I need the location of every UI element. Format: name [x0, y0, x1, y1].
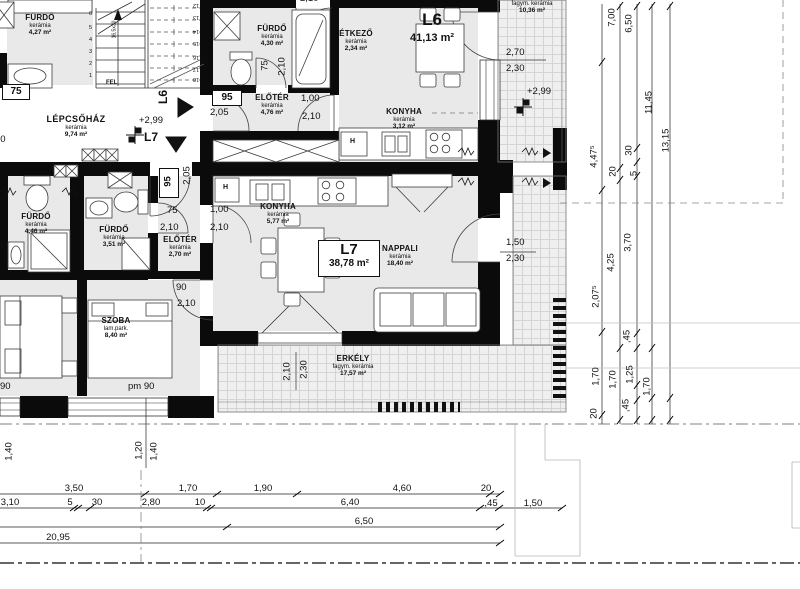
plan-linework — [0, 0, 800, 589]
dim-bottom: 6,40 — [341, 497, 360, 508]
dim-lines-bottom — [0, 398, 566, 546]
dim-bottom: 1,90 — [254, 483, 273, 494]
step-number: 15 — [190, 40, 202, 46]
unit-l7-box: L7 38,78 m² — [318, 240, 380, 277]
door-dim-l6entry-h: 2,05 — [210, 107, 229, 118]
reference-lines — [0, 0, 800, 563]
dim-right: 13,15 — [661, 121, 672, 161]
dim-right: 4,47⁵ — [589, 137, 600, 177]
room-label-szoba: SZOBA lam.park. 8,40 m² — [92, 317, 140, 339]
dim-bottom: 20 — [481, 483, 492, 494]
dim-right: 7,00 — [607, 0, 618, 38]
door-dim-l6balc-h: 2,30 — [506, 63, 525, 74]
door-dim-erkely-w: 2,10 — [282, 352, 293, 392]
stair-up-label: FEL — [106, 80, 117, 86]
dim-right: ,45 — [621, 386, 632, 426]
step-number: 17 — [190, 66, 202, 72]
step-number: 12 — [190, 2, 202, 8]
floor-plan: FÜRDŐ kerámia 4,27 m² LÉPCSŐHÁZ kerámia … — [0, 0, 800, 589]
room-label-living: NAPPALI kerámia 18,40 m² — [372, 245, 428, 267]
door-dim-erkely-h: 2,30 — [299, 350, 310, 390]
l6-direction-triangle — [178, 98, 193, 117]
dim-bottom: 5 — [67, 497, 72, 508]
step-number: 14 — [190, 28, 202, 34]
step-number: 18 — [190, 76, 202, 82]
dim-small: 1,20 — [134, 431, 145, 471]
room-label-kitchen-l6: KONYHA kerámia 3,12 m² — [378, 108, 430, 130]
door-dim-l6balc-w: 2,70 — [506, 47, 525, 58]
l7-direction-triangle — [166, 137, 186, 152]
window-label-szoba: pm 90 — [128, 381, 154, 392]
dim-right: 20 — [608, 152, 619, 192]
room-label-bathroom-nw: FÜRDŐ kerámia 4,27 m² — [12, 14, 68, 36]
dim-right: 3,70 — [623, 223, 634, 263]
step-number: 5 — [84, 25, 92, 31]
step-number: 13 — [190, 14, 202, 20]
dim-right: 1,70 — [591, 357, 602, 397]
room-label-bathroom-n: FÜRDŐ kerámia 4,30 m² — [246, 25, 298, 47]
dim-bottom: 20,95 — [46, 532, 70, 543]
room-label-foyer-l7: ELŐTÉR kerámia 2,70 m² — [154, 236, 206, 258]
railing-south — [378, 402, 460, 412]
door-dim-l7entry-w: 95 — [163, 162, 174, 202]
room-label-balcony-l6: ERKÉLY fagym. kerámia 10,36 m² — [501, 0, 563, 14]
stair-marker-l7: L7 — [144, 130, 158, 144]
dim-right: 20 — [589, 394, 600, 434]
dim-bottom: 4,60 — [393, 483, 412, 494]
dim-bottom: 2,80 — [142, 497, 161, 508]
dim-right: 11,45 — [644, 83, 655, 123]
dim-right: 6,50 — [624, 4, 635, 44]
step-number: 16 — [190, 54, 202, 60]
window-label-left: 90 — [0, 381, 11, 392]
dim-right: 1,70 — [608, 360, 619, 400]
dim-right: ,45 — [622, 317, 633, 357]
dim-bottom: 30 — [92, 497, 103, 508]
dim-right: 5 — [629, 154, 640, 194]
unit-l6-area: 41,13 m² — [402, 32, 462, 44]
dim-bottom: 1,70 — [179, 483, 198, 494]
door-dim-neloter-w: 1,00 — [301, 93, 320, 104]
dim-small: 1,40 — [4, 432, 15, 472]
dim-right: 4,25 — [606, 243, 617, 283]
door-dim-neloter-h: 2,10 — [302, 111, 321, 122]
dim-bottom: 3,50 — [65, 483, 84, 494]
door-dim-l7entry-h: 2,05 — [182, 156, 193, 196]
door-dim-nfurdo-h: 2,10 — [277, 47, 288, 87]
unit-l6-id: L6 — [402, 10, 462, 30]
room-label-bathroom-m: FÜRDŐ kerámia 3,51 m² — [90, 226, 138, 248]
room-label-balcony-l7: ERKÉLY fagym. kerámia 17,57 m² — [325, 355, 381, 377]
door-dim-top-h: 2,10 — [300, 0, 319, 4]
door-dim-nw-h: 2,10 — [0, 134, 6, 145]
step-number: 3 — [84, 49, 92, 55]
dim-bottom: 10 — [195, 497, 206, 508]
railing-east — [553, 295, 566, 398]
dim-bottom: 3,10 — [1, 497, 20, 508]
stair-riser-note: 16,5x30 — [110, 10, 121, 50]
fridge-label: H — [350, 138, 355, 145]
step-number: 6 — [84, 11, 92, 17]
door-dim-l7balc-h: 2,30 — [506, 253, 525, 264]
room-label-kitchen-l7: KONYHA kerámia 5,77 m² — [250, 203, 306, 225]
door-dim-szoba-w: 90 — [176, 282, 187, 293]
window-l6-east — [480, 60, 500, 120]
step-number: 4 — [84, 37, 92, 43]
door-dim-nw-w: 75 — [2, 84, 30, 100]
dim-right: 1,70 — [642, 367, 653, 407]
step-number: 2 — [84, 61, 92, 67]
door-dim-l7balc-w: 1,50 — [506, 237, 525, 248]
door-dim-nfurdo-w: 75 — [260, 46, 271, 86]
dim-bottom: 6,50 — [355, 516, 374, 527]
room-label-foyer-n: ELŐTÉR kerámia 4,76 m² — [244, 94, 300, 116]
dim-bottom: ,45 — [484, 498, 497, 509]
fridge-label: H — [223, 184, 228, 191]
dim-bottom: 1,50 — [524, 498, 543, 509]
dim-small: 1,40 — [149, 432, 160, 472]
door-dim-szoba-h: 2,10 — [177, 298, 196, 309]
door-dim-l7konyha-w: 1,00 — [210, 204, 229, 215]
stair-marker-l6: L6 — [157, 77, 169, 117]
room-label-dining: ÉTKEZŐ kerámia 2,34 m² — [330, 30, 382, 52]
dim-right: 2,07⁵ — [591, 277, 602, 317]
step-number: 1 — [84, 73, 92, 79]
door-dim-mfurdo-h: 2,10 — [160, 222, 179, 233]
door-dim-mfurdo-w: 75 — [167, 205, 178, 216]
door-dim-l7konyha-h: 2,10 — [210, 222, 229, 233]
room-label-bathroom-w: FÜRDŐ kerámia 4,46 m² — [12, 213, 60, 235]
room-label-staircase: LÉPCSŐHÁZ kerámia 9,74 m² — [36, 115, 116, 138]
level-balcony: +2,99 — [527, 86, 551, 97]
door-dim-l6entry-w: 95 — [212, 90, 242, 106]
